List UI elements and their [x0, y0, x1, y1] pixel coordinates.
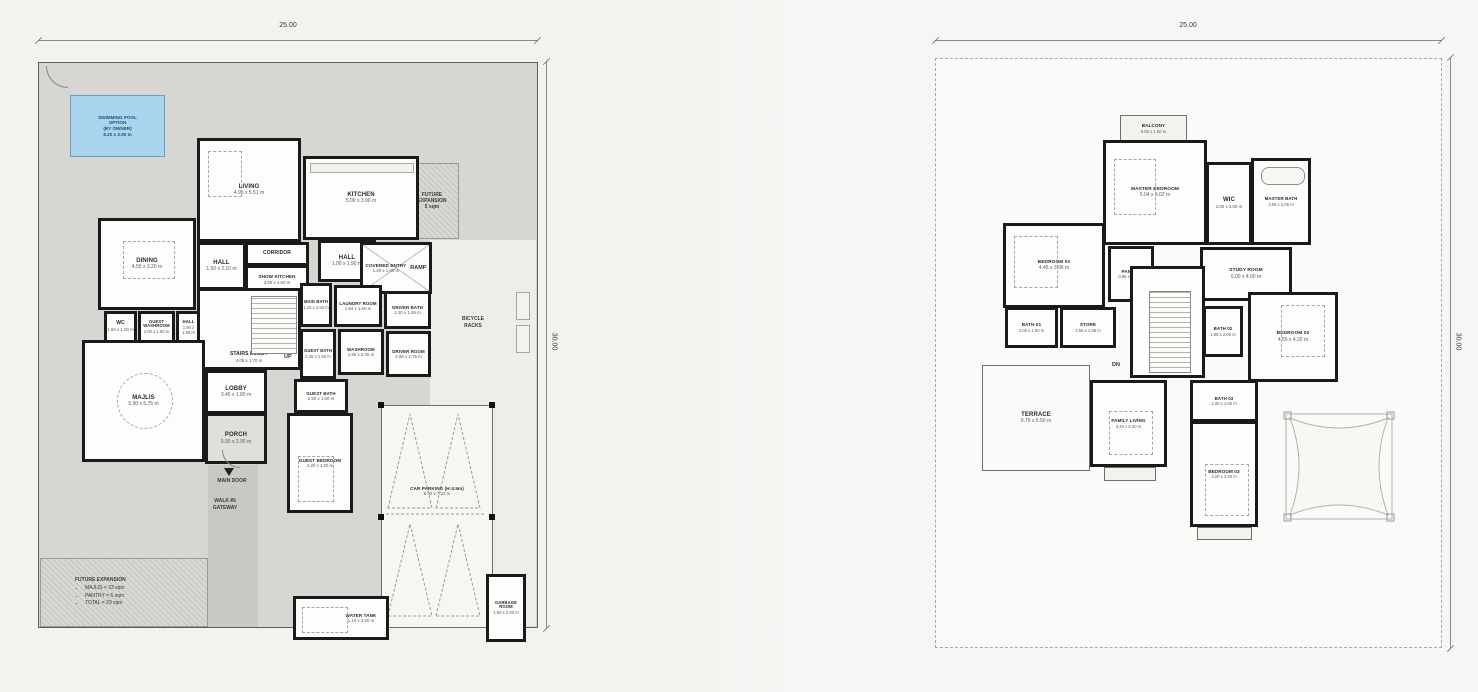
room-bath-03: BATH 03 2.30 x 1.60 m — [1190, 380, 1258, 422]
room-dims: 2.50 x 1.60 m — [308, 396, 335, 401]
parking-column — [378, 402, 384, 408]
room-dims: 1.10 x 2.50 m — [303, 305, 328, 310]
room-dims: 5.43 x 7.23 m — [382, 491, 492, 496]
up-label: UP — [284, 354, 292, 360]
first-right-dimension-line — [1450, 58, 1451, 648]
majlis-table-outline — [117, 373, 173, 429]
room-dims: 1.95 x 2.05 m — [348, 352, 375, 357]
dining-table-outline — [123, 241, 175, 279]
sofa-outline — [208, 151, 242, 197]
room-terrace: TERRACE 6.75 x 5.50 m — [982, 365, 1090, 471]
bicycle-racks-label: BICYCLE RACKS — [450, 316, 496, 329]
room-dining: DINING 4.55 x 3.20 m — [98, 218, 196, 310]
room-dims: 5.00 x 1.50 m — [1141, 129, 1166, 134]
room-dims: 6.75 x 5.50 m — [1021, 418, 1051, 424]
room-living: LIVING 4.95 x 5.51 m — [197, 138, 301, 242]
room-store: STORE 2.50 x 1.95 m — [1060, 307, 1116, 348]
bicycle-rack-icon — [516, 292, 530, 320]
room-balcony: BALCONY 5.00 x 1.50 m — [1120, 115, 1187, 142]
dn-label: DN — [1112, 362, 1120, 368]
ground-top-dimension-label: 25.00 — [263, 22, 313, 29]
room-master-bedroom: MASTER BEDROOM 5.04 x 5.02 m — [1103, 140, 1207, 245]
ground-right-dimension-line — [546, 62, 547, 628]
swimming-pool: SWIMMING POOL OPTION (BY OWNER) 8.20 x 3… — [70, 95, 165, 157]
bed-outline — [298, 456, 334, 502]
room-dims: 1.94 x 1.60 m — [345, 306, 372, 311]
room-dims: 1.48 x 2.50 m — [305, 354, 330, 359]
room-dims: 2.20 x 1.95 m — [394, 310, 421, 315]
room-stairs-lobby: UP STAIRS LOBBY 4.05 x 1.70 m — [197, 288, 301, 370]
room-dims: 1.50 x 2.10 m — [206, 266, 236, 272]
bedroom-03-balcony — [1197, 527, 1252, 540]
main-door-label: MAIN DOOR — [207, 478, 257, 485]
room-dims: 5.90 x 2.90 m — [221, 439, 251, 445]
future-area-label: 5 sqm — [417, 204, 446, 210]
room-dims: 2.30 x 1.60 m — [1211, 401, 1236, 406]
room-bath-01: BATH 01 2.05 x 1.60 m — [1005, 307, 1058, 348]
room-driver-bath: DRIVER BATH 2.20 x 1.95 m — [384, 291, 431, 329]
future-list-item: PANTRY = 6 sqm — [85, 593, 126, 601]
table-outline — [1109, 411, 1153, 455]
room-guest-washroom: GUEST WASHROOM 2.00 x 1.60 m — [138, 311, 175, 343]
family-living-balcony — [1104, 467, 1156, 481]
room-bedroom-02: BEDROOM 02 4.55 x 4.20 m — [1248, 292, 1338, 382]
room-dims: 1.10 x 3.00 m — [348, 618, 375, 623]
room-family-living: FAMILY LIVING 3.40 x 5.30 m — [1090, 380, 1167, 467]
room-driver-room: DRIVER ROOM 2.65 x 2.75 m — [386, 331, 431, 377]
room-washroom: WASHROOM 1.95 x 2.05 m — [338, 329, 384, 375]
room-bath-02: BATH 02 1.95 x 2.00 m — [1203, 306, 1243, 357]
pool-label: 8.20 x 3.90 m — [103, 132, 131, 138]
room-majlis: MAJLIS 5.90 x 5.75 m — [82, 340, 205, 462]
room-water-tank: WATER TANK 1.10 x 3.00 m — [293, 596, 389, 640]
walk-in-line: GATEWAY — [200, 505, 250, 512]
room-wic: WIC 2.00 x 3.00 m — [1206, 162, 1252, 245]
room-dims: 5.00 x 3.90 m — [346, 198, 376, 204]
room-name: KITCHEN — [347, 192, 374, 199]
ground-top-dimension-line — [38, 40, 538, 41]
room-guest-bath-1: GUEST BATH 1.48 x 2.50 m — [300, 329, 336, 379]
first-right-dimension-label: 30.00 — [1455, 322, 1462, 362]
room-name: GARBAGE ROOM — [489, 601, 523, 611]
bathtub-icon — [1261, 167, 1305, 185]
ground-right-dimension-label: 30.00 — [551, 322, 558, 362]
room-dims: 5.00 x 4.00 m — [1231, 274, 1261, 280]
main-door-arrow-icon — [224, 468, 234, 476]
kitchen-counter — [310, 163, 414, 173]
parking-column — [489, 402, 495, 408]
room-name: WIC — [1223, 197, 1235, 204]
room-kitchen: KITCHEN 5.00 x 3.90 m — [303, 156, 419, 240]
room-dims: 2.05 x 1.60 m — [1019, 328, 1044, 333]
room-guest-bath-2: GUEST BATH 2.50 x 1.60 m — [294, 379, 348, 413]
room-corridor: CORRIDOR — [245, 242, 309, 266]
car-shade-canopy — [1280, 408, 1398, 525]
room-dims: 3.45 x 1.80 m — [221, 392, 251, 398]
room-stairs-hall: STAIRS HALL 4.74 x 3.04 m — [1130, 266, 1205, 378]
first-top-dimension-line — [935, 40, 1442, 41]
room-dims: 1.50 x 1.00 m — [107, 327, 134, 332]
room-maid-bath: MAID BATH 1.10 x 2.50 m — [300, 283, 332, 327]
room-name: LOBBY — [225, 386, 247, 393]
parking-triangles — [382, 406, 488, 623]
tank-outline — [302, 607, 348, 633]
room-name: CORRIDOR — [263, 251, 291, 257]
room-dims: 3.50 x 4.60 m — [264, 280, 291, 285]
room-dims: 2.50 x 1.95 m — [1075, 328, 1100, 333]
bed-outline — [1014, 236, 1058, 288]
room-wc: WC 1.50 x 1.00 m — [104, 311, 137, 343]
room-hall-left: HALL 1.50 x 2.10 m — [197, 242, 246, 290]
room-name: GUEST WASHROOM — [141, 320, 172, 330]
future-expansion-area-bottom: FUTURE EXPANSION MAJLIS = 23 sqm PANTRY … — [40, 558, 208, 627]
room-guest-bedroom: GUEST BEDROOM 4.20 x 4.00 m — [287, 413, 353, 513]
room-name: HALL — [339, 255, 355, 262]
room-bedroom-03: BEDROOM 03 4.20 x 4.30 m — [1190, 421, 1258, 527]
room-dims: 1.00 x 2.00 m — [493, 610, 518, 615]
room-garbage: GARBAGE ROOM 1.00 x 2.00 m — [486, 574, 526, 642]
room-dims: 3.95 x 2.05 m — [1268, 202, 1293, 207]
staircase — [1149, 291, 1191, 373]
walk-in-gateway-label: WALK-IN GATEWAY — [200, 498, 250, 511]
room-dims: 1.95 x 2.00 m — [1210, 332, 1235, 337]
ramp-label: RAMP — [410, 265, 426, 271]
room-bedroom-01: BEDROOM 01 4.45 x 3.95 m — [1003, 223, 1105, 308]
room-dims: 4.05 x 1.70 m — [236, 358, 263, 363]
bicycle-racks-line: RACKS — [450, 323, 496, 330]
room-dims: 1.40 x 1.90 m — [373, 268, 400, 273]
room-dims: 2.00 x 3.00 m — [1216, 204, 1243, 209]
bicycle-rack-icon — [516, 325, 530, 353]
room-name: HALL — [213, 260, 229, 267]
bed-outline — [1281, 305, 1325, 357]
ground-walkway — [208, 465, 258, 627]
room-dims: 1.00 x 1.90 m — [332, 261, 362, 267]
bed-outline — [1205, 464, 1249, 516]
room-laundry: LAUNDRY ROOM 1.94 x 1.60 m — [334, 285, 382, 327]
car-parking-area: CAR PARKING (H:4.5m) 5.43 x 7.23 m — [381, 405, 493, 628]
future-list-title: FUTURE EXPANSION — [75, 577, 126, 585]
room-master-bath: MASTER BATH 3.95 x 2.05 m — [1251, 158, 1311, 245]
room-lobby: LOBBY 3.45 x 1.80 m — [205, 370, 267, 414]
parking-column — [378, 514, 384, 520]
room-name: PORCH — [225, 432, 247, 439]
future-list-item: TOTAL = 29 sqm — [85, 600, 126, 608]
staircase — [251, 296, 297, 354]
room-dims: 1.90 x 1.90 m — [179, 325, 198, 335]
room-dims: 2.00 x 1.60 m — [144, 329, 169, 334]
room-dims: 2.65 x 2.75 m — [395, 354, 422, 359]
bed-outline — [1114, 159, 1156, 215]
room-name: TERRACE — [1021, 412, 1051, 419]
parking-column — [489, 514, 495, 520]
first-top-dimension-label: 25.00 — [1163, 22, 1213, 29]
floorplan-canvas: 25.00 30.00 SWIMMING POOL OPTION (BY OWN… — [0, 0, 1478, 692]
future-list-item: MAJLIS = 23 sqm — [85, 585, 126, 593]
